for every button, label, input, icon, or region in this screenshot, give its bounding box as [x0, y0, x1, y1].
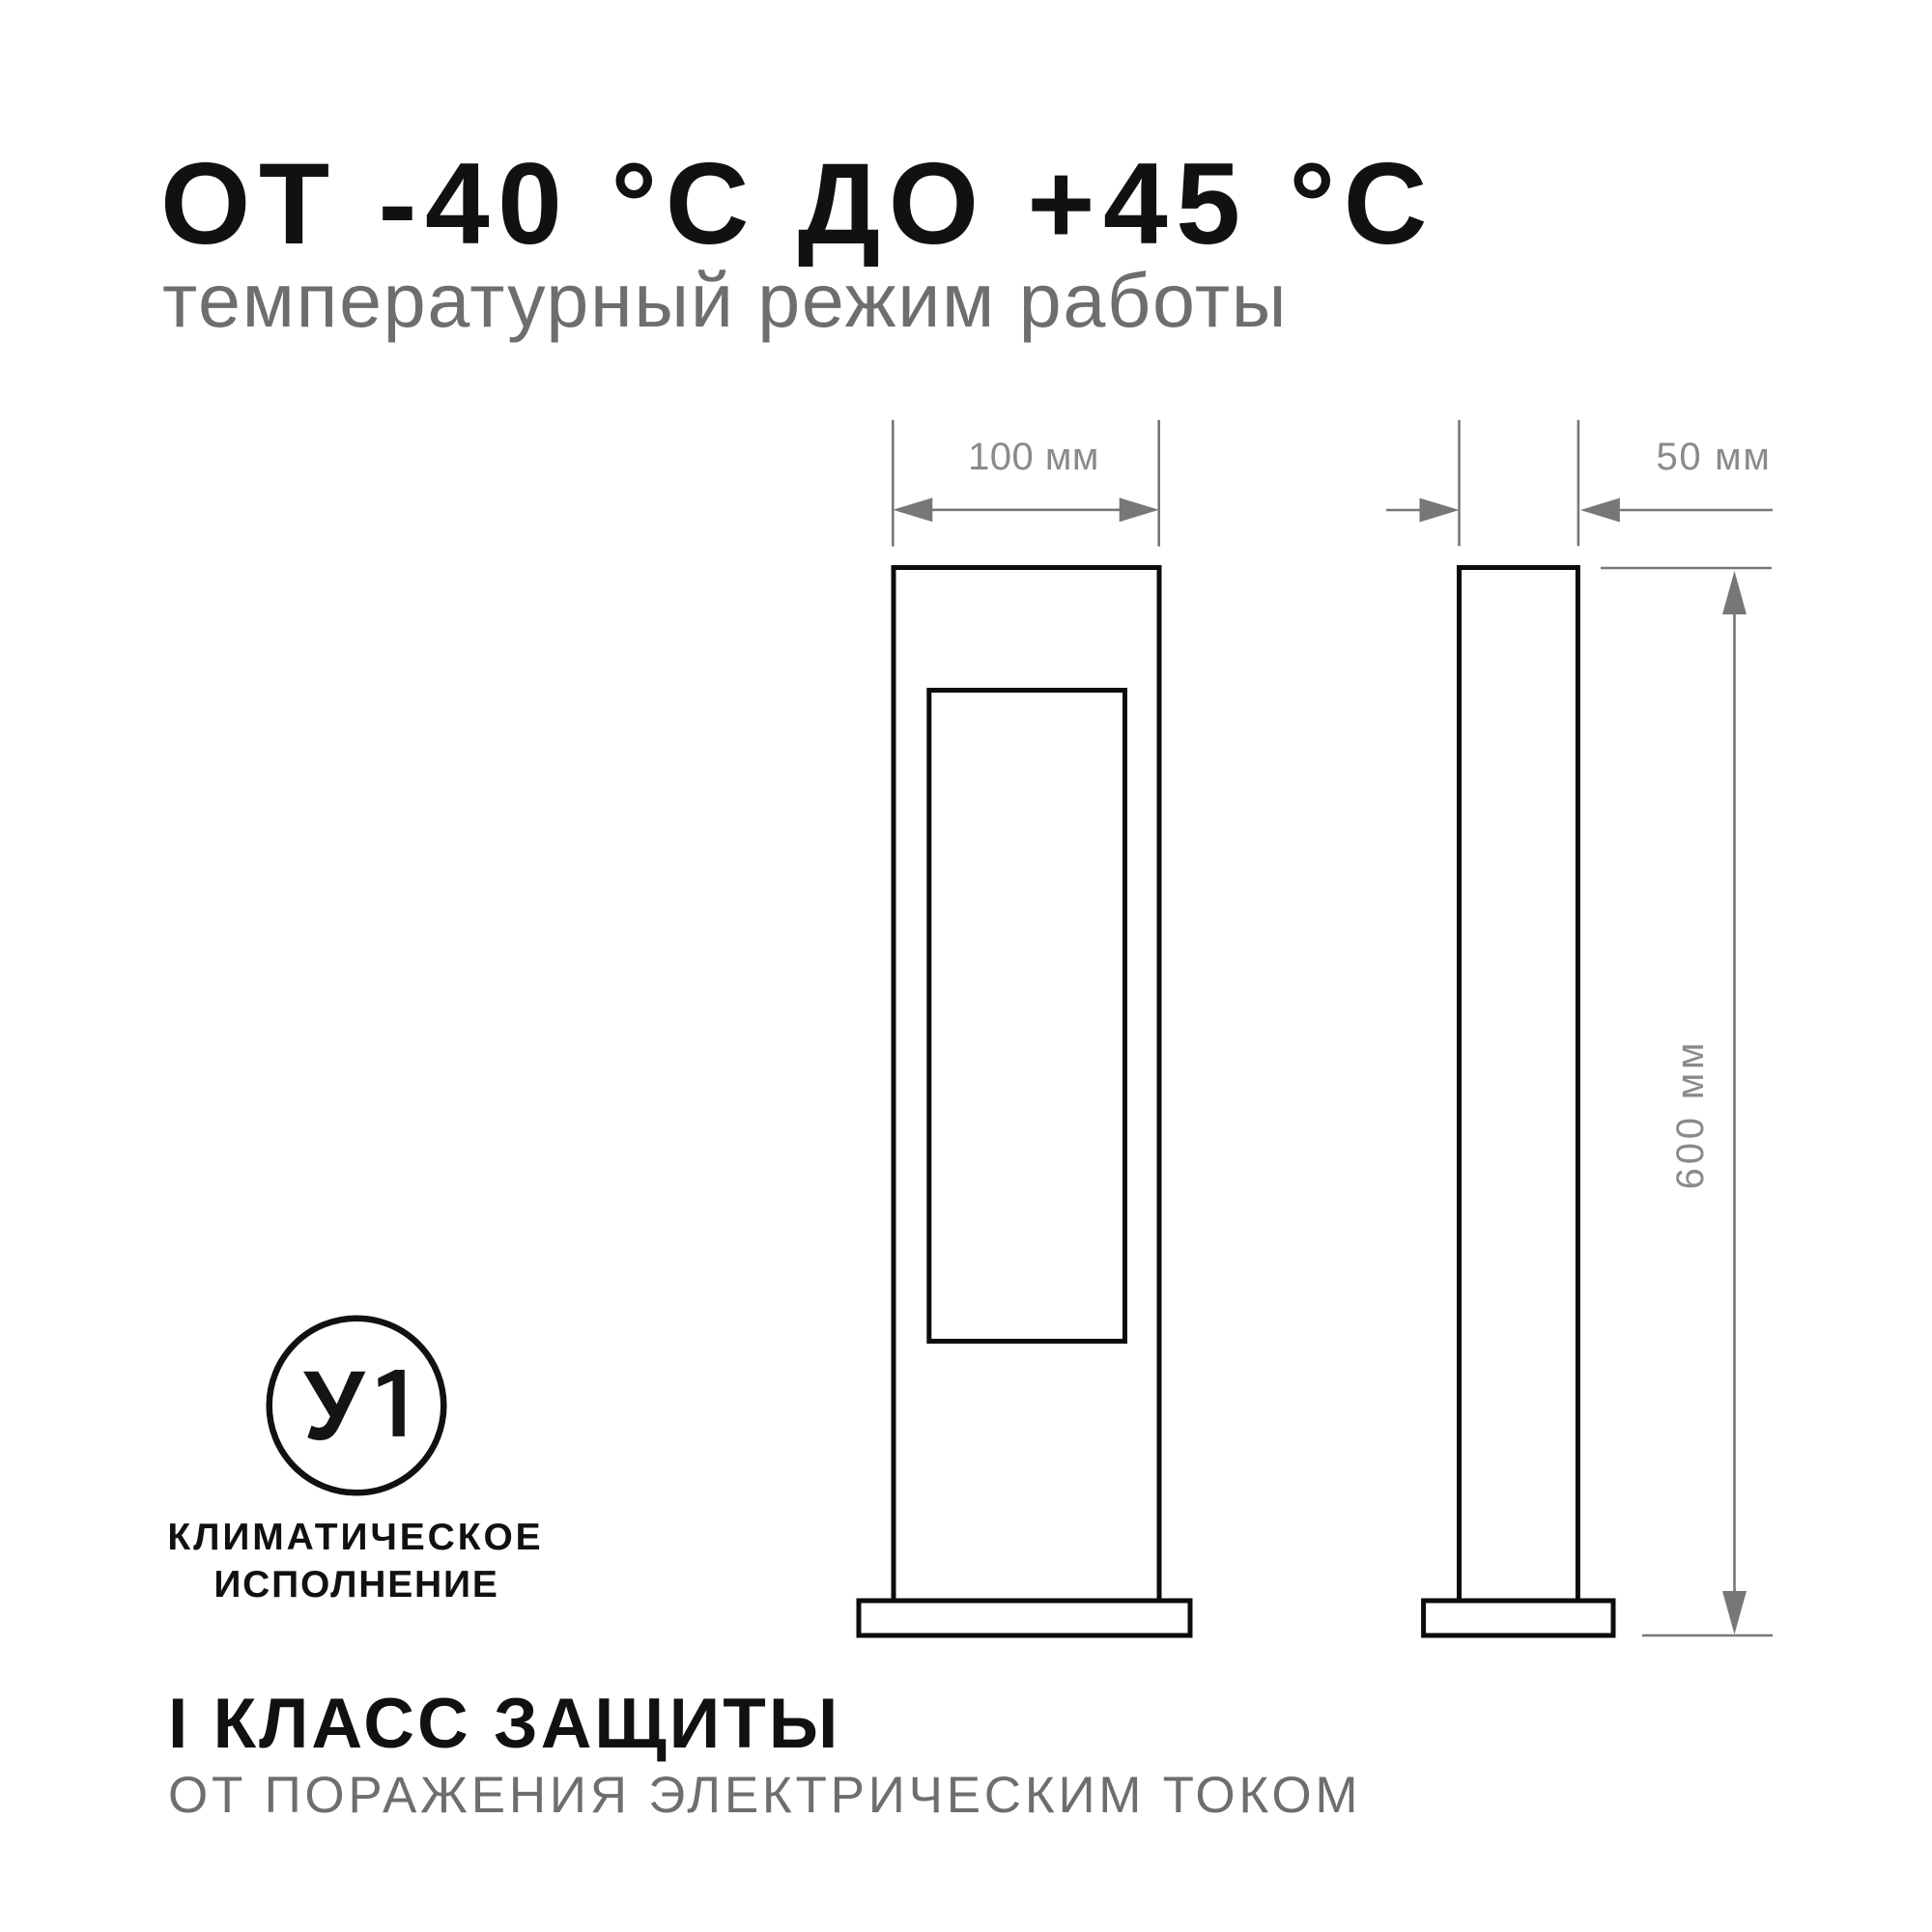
svg-text:50 мм: 50 мм	[1656, 436, 1771, 478]
svg-text:600 мм: 600 мм	[1669, 1039, 1712, 1190]
svg-text:100 мм: 100 мм	[968, 436, 1099, 478]
